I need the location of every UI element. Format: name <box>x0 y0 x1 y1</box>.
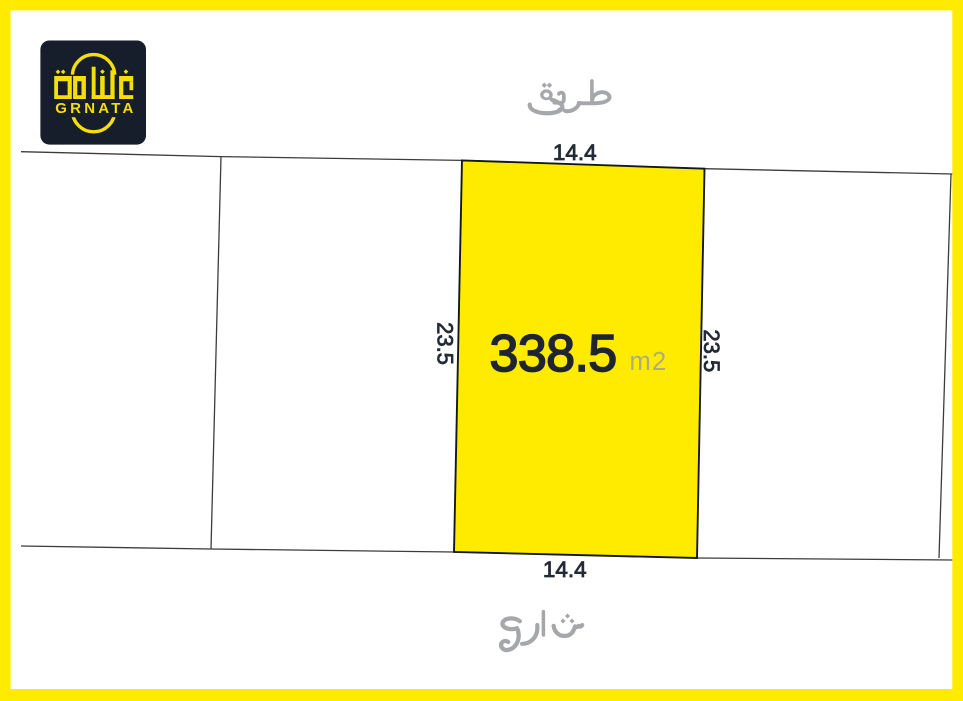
svg-text:m2: m2 <box>630 348 668 376</box>
svg-text:338.5: 338.5 <box>490 325 617 383</box>
svg-text:23.5: 23.5 <box>433 322 458 365</box>
svg-text:14.4: 14.4 <box>553 140 597 165</box>
svg-text:14.4: 14.4 <box>543 557 587 582</box>
svg-text:23.5: 23.5 <box>699 329 724 372</box>
